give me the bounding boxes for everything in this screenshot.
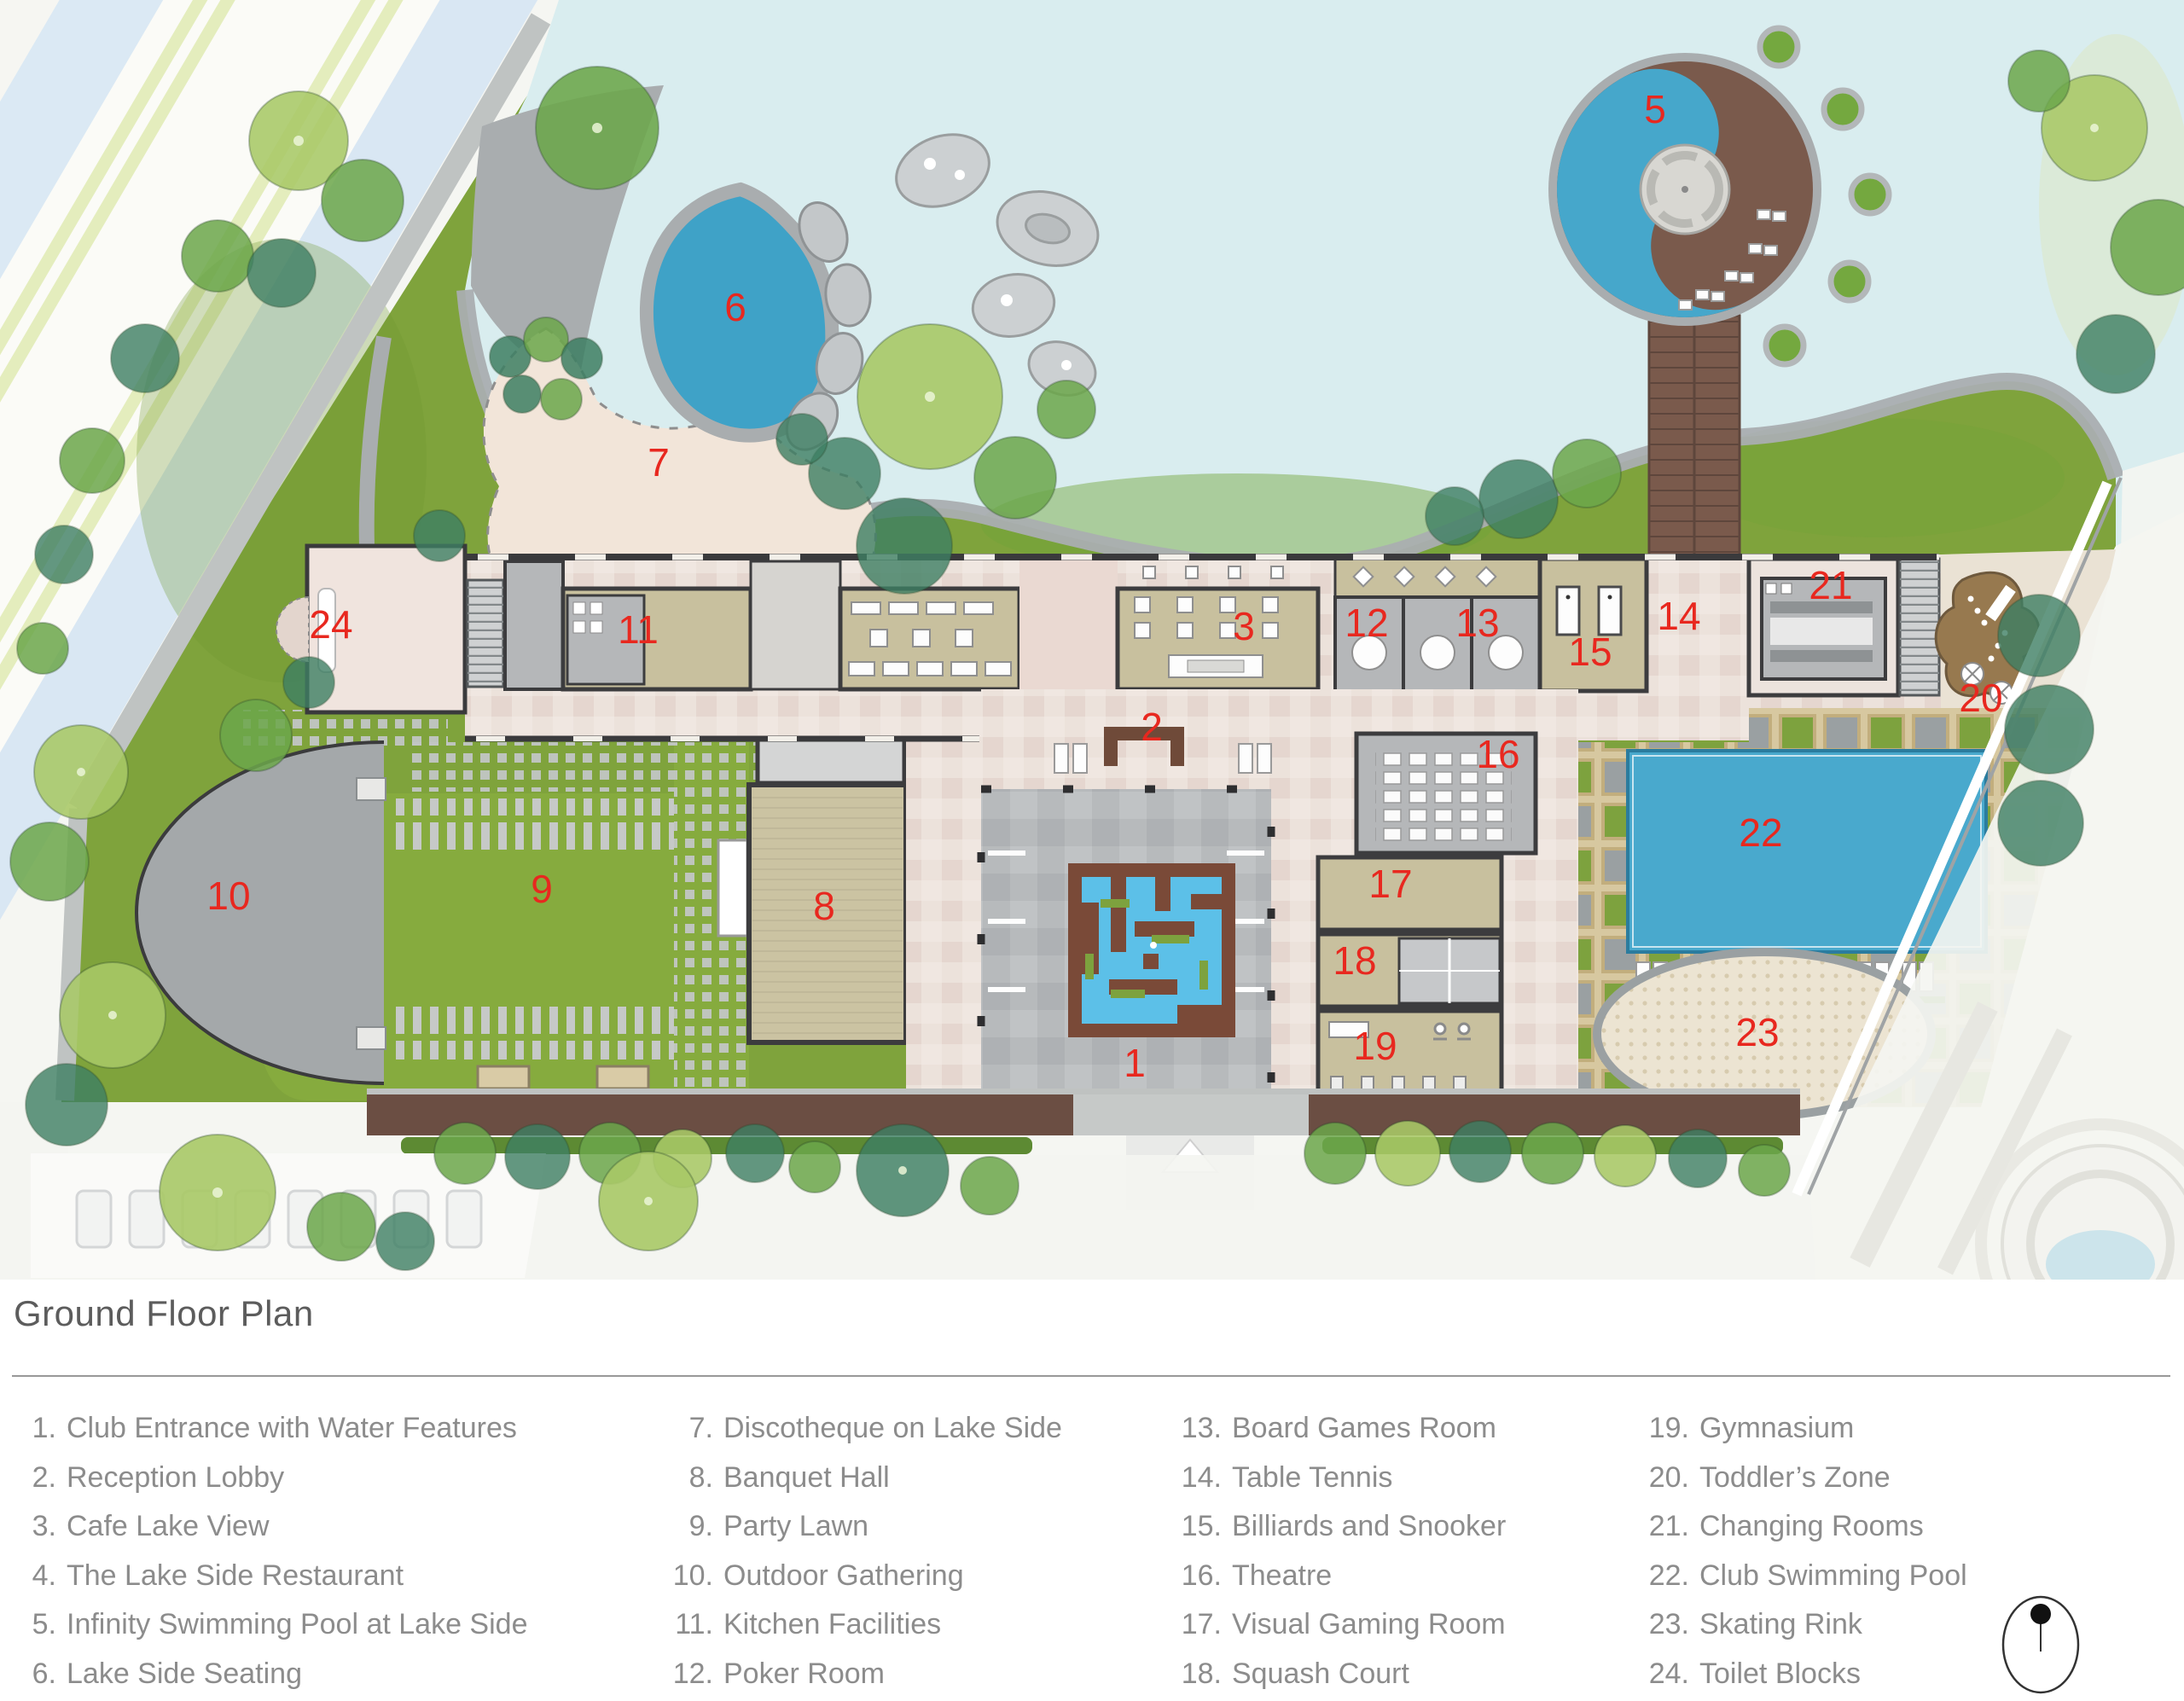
legend-column-1: 1.Club Entrance with Water Features2.Rec… [14,1404,671,1698]
page: 12356789101112131415161718192021222324 G… [0,0,2184,1701]
plan-marker-16: 16 [1476,732,1519,776]
plan-marker-3: 3 [1233,604,1255,648]
legend-item-4: 4.The Lake Side Restaurant [14,1552,671,1601]
club-swimming-pool [1628,751,1986,952]
plan-marker-14: 14 [1657,594,1700,638]
plan-marker-7: 7 [648,440,670,485]
divider [12,1375,2170,1377]
plan-marker-20: 20 [1959,676,2002,720]
plan-marker-5: 5 [1644,87,1666,131]
legend-item-10: 10.Outdoor Gathering [671,1552,1179,1601]
legend-item-13: 13.Board Games Room [1179,1404,1647,1454]
plan-marker-21: 21 [1809,563,1852,607]
plan-marker-13: 13 [1455,601,1499,645]
legend-item-24: 24.Toilet Blocks [1647,1650,2167,1699]
legend: 1.Club Entrance with Water Features2.Rec… [14,1404,2167,1698]
site-plan: 12356789101112131415161718192021222324 [0,0,2184,1280]
plan-marker-9: 9 [531,867,553,911]
legend-item-18: 18.Squash Court [1179,1650,1647,1699]
feature-wall [718,840,747,936]
legend-item-11: 11.Kitchen Facilities [671,1600,1179,1650]
lakeside-restaurant [840,589,1019,689]
legend-item-5: 5.Infinity Swimming Pool at Lake Side [14,1600,671,1650]
plan-marker-22: 22 [1739,810,1782,855]
legend-column-2: 7.Discotheque on Lake Side8.Banquet Hall… [671,1404,1179,1698]
legend-item-15: 15.Billiards and Snooker [1179,1502,1647,1552]
island-boardwalk [1649,316,1740,559]
legend-item-1: 1.Club Entrance with Water Features [14,1404,671,1454]
stairs-treads [1900,559,1939,695]
plan-marker-15: 15 [1568,630,1612,674]
banquet-hall [749,698,906,1042]
legend-item-20: 20.Toddler’s Zone [1647,1454,2167,1503]
compass-north-dot [2030,1604,2051,1624]
page-title: Ground Floor Plan [14,1293,314,1334]
plan-marker-17: 17 [1368,862,1412,906]
legend-column-4: 19.Gymnasium20.Toddler’s Zone21.Changing… [1647,1404,2167,1698]
legend-item-21: 21.Changing Rooms [1647,1502,2167,1552]
plan-marker-19: 19 [1353,1024,1397,1068]
legend-item-16: 16.Theatre [1179,1552,1647,1601]
plan-marker-1: 1 [1124,1041,1146,1085]
site-plan-canvas: 12356789101112131415161718192021222324 [0,0,2184,1280]
plan-marker-2: 2 [1141,705,1163,749]
legend-item-17: 17.Visual Gaming Room [1179,1600,1647,1650]
legend-item-7: 7.Discotheque on Lake Side [671,1404,1179,1454]
corridor [906,698,981,1109]
plan-marker-10: 10 [206,874,250,918]
legend-item-23: 23.Skating Rink [1647,1600,2167,1650]
legend-column-3: 13.Board Games Room14.Table Tennis15.Bil… [1179,1404,1647,1698]
plan-marker-6: 6 [724,285,746,329]
north-compass-icon [1995,1590,2087,1698]
plan-marker-23: 23 [1735,1010,1779,1054]
legend-item-8: 8.Banquet Hall [671,1454,1179,1503]
legend-item-19: 19.Gymnasium [1647,1404,2167,1454]
water-maze-feature [1068,863,1235,1037]
legend-item-6: 6.Lake Side Seating [14,1650,671,1699]
legend-item-22: 22.Club Swimming Pool [1647,1552,2167,1601]
plan-marker-11: 11 [618,607,659,652]
legend-item-3: 3.Cafe Lake View [14,1502,671,1552]
legend-item-14: 14.Table Tennis [1179,1454,1647,1503]
legend-item-9: 9.Party Lawn [671,1502,1179,1552]
plan-marker-8: 8 [813,884,835,928]
entry-hall [1019,559,1118,695]
plan-marker-24: 24 [309,602,352,647]
legend-item-12: 12.Poker Room [671,1650,1179,1699]
legend-item-2: 2.Reception Lobby [14,1454,671,1503]
plan-marker-12: 12 [1345,601,1388,645]
plan-marker-18: 18 [1333,938,1376,983]
